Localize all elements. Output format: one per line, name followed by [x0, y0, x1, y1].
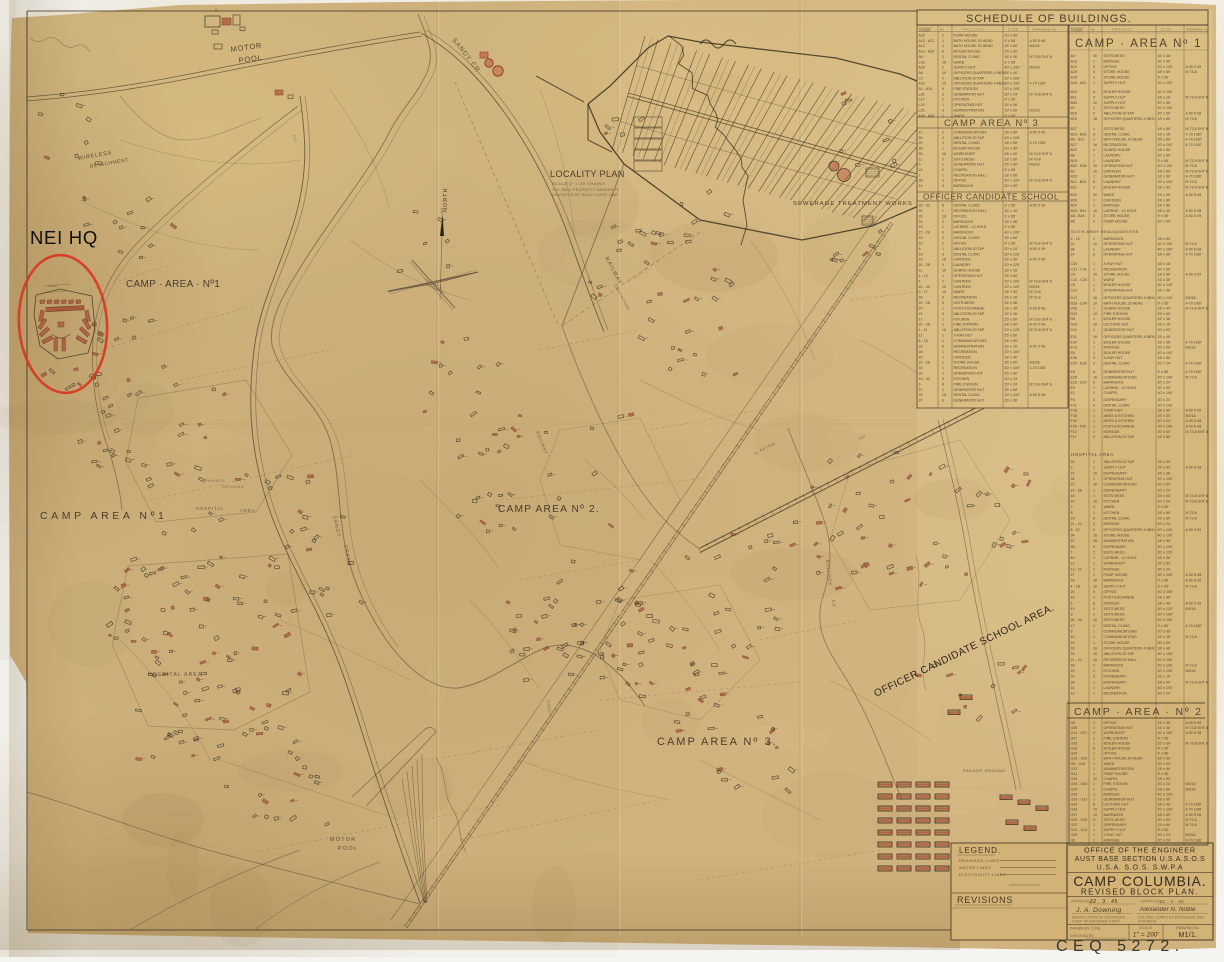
svg-text:DISPENSARY: DISPENSARY — [1104, 823, 1128, 827]
svg-text:7: 7 — [1071, 550, 1073, 554]
svg-text:3: 3 — [1093, 185, 1095, 189]
svg-text:Alexander N. Noble: Alexander N. Noble — [1139, 907, 1196, 913]
svg-text:GUARD HOUSE: GUARD HOUSE — [1104, 148, 1131, 152]
svg-text:A 50 D 08: A 50 D 08 — [1186, 112, 1202, 116]
svg-text:CANTEEN: CANTEEN — [954, 285, 972, 289]
svg-text:RECREATION: RECREATION — [1104, 267, 1128, 271]
svg-text:M 73-8 SHT 6: M 73-8 SHT 6 — [1030, 317, 1052, 321]
svg-text:RECREATION HALL: RECREATION HALL — [1104, 658, 1137, 662]
svg-text:1: 1 — [1093, 767, 1095, 771]
svg-text:OFFICE: OFFICE — [1104, 721, 1118, 725]
svg-text:18' x 60': 18' x 60' — [1005, 173, 1018, 177]
svg-text:1: 1 — [942, 372, 944, 376]
svg-text:25' x 60': 25' x 60' — [1005, 372, 1018, 376]
svg-text:POOL: POOL — [338, 846, 358, 852]
svg-text:M 73-8: M 73-8 — [1186, 823, 1197, 827]
svg-text:M 73-8: M 73-8 — [1186, 511, 1197, 515]
svg-text:BATH HOUSE 20 HEAD: BATH HOUSE 20 HEAD — [954, 44, 993, 48]
svg-text:18' x 40': 18' x 40' — [1158, 209, 1171, 213]
svg-text:21: 21 — [919, 131, 923, 135]
svg-text:CHAPEL: CHAPEL — [954, 168, 968, 172]
svg-text:6: 6 — [942, 344, 944, 348]
svg-text:9' x 55': 9' x 55' — [1005, 225, 1016, 229]
svg-text:6: 6 — [1093, 253, 1095, 257]
svg-text:GENERATOR HUT: GENERATOR HUT — [954, 92, 986, 96]
svg-text:1: 1 — [1093, 752, 1095, 756]
svg-text:M3/18: M3/18 — [1030, 44, 1040, 48]
svg-text:B37: B37 — [1071, 127, 1077, 131]
svg-text:20' x 24': 20' x 24' — [1158, 398, 1171, 402]
svg-text:DRAWING No: DRAWING No — [1187, 28, 1208, 32]
svg-text:LAUNDRY: LAUNDRY — [1104, 686, 1122, 690]
svg-text:GENERATOR HUT: GENERATOR HUT — [1104, 798, 1136, 802]
svg-text:1: 1 — [1093, 351, 1095, 355]
svg-text:16: 16 — [1093, 54, 1097, 58]
svg-text:G29: G29 — [1071, 752, 1078, 756]
svg-text:M 73-8 SHT 6: M 73-8 SHT 6 — [1030, 152, 1052, 156]
svg-text:20' x 100': 20' x 100' — [1158, 106, 1173, 110]
svg-text:M 73-8 SHT 6: M 73-8 SHT 6 — [1186, 680, 1208, 684]
svg-text:1: 1 — [1093, 138, 1095, 142]
svg-text:LATRINE - 12 HOLE: LATRINE - 12 HOLE — [954, 225, 987, 229]
svg-text:6: 6 — [1093, 601, 1095, 605]
svg-text:HOSPITAL AREA: HOSPITAL AREA — [1071, 452, 1114, 457]
svg-text:3: 3 — [1071, 630, 1073, 634]
svg-text:A 50 D 08: A 50 D 08 — [1186, 247, 1202, 251]
svg-text:M 73-8 SHT 6: M 73-8 SHT 6 — [1030, 241, 1052, 245]
svg-text:CAMP · AREA Nº 1: CAMP · AREA Nº 1 — [1075, 38, 1202, 50]
svg-text:AUST BASE SECTION U.S.A.S.O: AUST BASE SECTION U.S.A.S.O.S — [1075, 856, 1205, 863]
svg-text:1: 1 — [1093, 663, 1095, 667]
svg-text:16: 16 — [1093, 117, 1097, 121]
svg-text:10: 10 — [942, 285, 946, 289]
svg-text:DISPENSARY: DISPENSARY — [1104, 471, 1128, 475]
svg-text:20' x 120': 20' x 120' — [1158, 550, 1173, 554]
svg-text:9' x 55': 9' x 55' — [1005, 241, 1016, 245]
svg-text:A 50 D 08: A 50 D 08 — [1186, 209, 1202, 213]
svg-text:20 - 28: 20 - 28 — [919, 361, 930, 365]
svg-text:2: 2 — [942, 92, 944, 96]
svg-text:18' x 40': 18' x 40' — [1158, 721, 1171, 725]
svg-text:18' x 40': 18' x 40' — [1158, 680, 1171, 684]
svg-text:CHAPEL: CHAPEL — [1104, 391, 1118, 395]
svg-text:18' x 90': 18' x 90' — [1158, 596, 1171, 600]
svg-text:OPERATING HUT: OPERATING HUT — [1104, 164, 1134, 168]
svg-text:1: 1 — [1093, 823, 1095, 827]
svg-text:WARD: WARD — [954, 60, 965, 64]
svg-text:M 73-8: M 73-8 — [1186, 70, 1197, 74]
svg-text:CANTEEN: CANTEEN — [1104, 169, 1122, 173]
svg-text:20: 20 — [919, 141, 923, 145]
svg-text:L19: L19 — [919, 103, 925, 107]
svg-text:3: 3 — [942, 263, 944, 267]
svg-text:CAMP AREA Nº1: CAMP AREA Nº1 — [40, 510, 167, 522]
svg-text:E39: E39 — [1071, 340, 1077, 344]
svg-text:20' x 24': 20' x 24' — [1158, 838, 1171, 842]
svg-text:5: 5 — [1071, 601, 1073, 605]
svg-text:KITCHEN: KITCHEN — [954, 317, 970, 321]
svg-text:DRAINAGE LINES: DRAINAGE LINES — [959, 858, 1000, 863]
svg-text:G37: G37 — [1071, 736, 1078, 740]
svg-text:DISPENSARY: DISPENSARY — [1104, 680, 1128, 684]
svg-text:PUMP HOUSE: PUMP HOUSE — [954, 34, 979, 38]
svg-text:~~~: ~~~ — [1008, 883, 1017, 889]
svg-text:40' x 100': 40' x 100' — [1158, 792, 1173, 796]
svg-text:1: 1 — [1093, 787, 1095, 791]
svg-text:G13: G13 — [1071, 767, 1078, 771]
svg-text:SGTS MESS: SGTS MESS — [1104, 54, 1126, 58]
svg-text:M 73-8 SHT 6: M 73-8 SHT 6 — [1030, 92, 1052, 96]
svg-text:16' x 36': 16' x 36' — [1005, 399, 1018, 403]
svg-text:GENERATOR HUT: GENERATOR HUT — [1104, 370, 1136, 374]
svg-text:GROUND: GROUND — [222, 484, 245, 489]
svg-text:B19: B19 — [1071, 117, 1077, 121]
svg-text:1: 1 — [1093, 419, 1095, 423]
svg-text:No: No — [940, 28, 944, 32]
svg-text:M 73-8 SHT 6: M 73-8 SHT 6 — [1030, 328, 1052, 332]
svg-text:E6: E6 — [1071, 370, 1075, 374]
svg-text:20' x 50': 20' x 50' — [1005, 34, 1018, 38]
svg-text:40' x 100': 40' x 100' — [1005, 231, 1020, 235]
svg-text:1: 1 — [1093, 692, 1095, 696]
svg-text:3: 3 — [1071, 505, 1073, 509]
svg-text:18' x 60': 18' x 60' — [1158, 273, 1171, 277]
svg-text:FIRE STATION: FIRE STATION — [1104, 736, 1129, 740]
svg-text:MORGUE: MORGUE — [1104, 59, 1121, 63]
svg-text:CAMP AREA Nº 3: CAMP AREA Nº 3 — [944, 118, 1039, 129]
svg-text:1: 1 — [1093, 556, 1095, 560]
svg-text:20' x 24': 20' x 24' — [1158, 522, 1171, 526]
svg-text:OPERATING HUT: OPERATING HUT — [954, 274, 984, 278]
svg-text:B24: B24 — [1071, 90, 1077, 94]
svg-text:18' x 40': 18' x 40' — [1158, 307, 1171, 311]
svg-text:L3: L3 — [919, 76, 923, 80]
svg-text:13: 13 — [1071, 692, 1075, 696]
svg-text:BOILER HOUSE: BOILER HOUSE — [1104, 283, 1132, 287]
svg-text:1: 1 — [942, 44, 944, 48]
svg-text:B17: B17 — [1071, 143, 1077, 147]
svg-text:20' x 50': 20' x 50' — [1158, 112, 1171, 116]
svg-text:A1 - A10: A1 - A10 — [919, 87, 933, 91]
svg-text:40' x 100': 40' x 100' — [1158, 242, 1173, 246]
svg-text:COMMUNICATIONS: COMMUNICATIONS — [954, 339, 988, 343]
svg-text:20' x 120': 20' x 120' — [1158, 283, 1173, 287]
svg-text:6: 6 — [1093, 590, 1095, 594]
svg-text:16' x 36': 16' x 36' — [1158, 54, 1171, 58]
svg-text:SIZE: SIZE — [1008, 28, 1019, 32]
svg-text:10: 10 — [1093, 584, 1097, 588]
svg-text:16' x 16': 16' x 16' — [1005, 209, 1018, 213]
svg-text:ABLUTION 20 TAP: ABLUTION 20 TAP — [1104, 112, 1135, 116]
svg-text:OFFICE: OFFICE — [954, 179, 968, 183]
svg-text:34: 34 — [919, 366, 923, 370]
svg-text:3: 3 — [1093, 132, 1095, 136]
svg-text:M 73-8: M 73-8 — [1186, 117, 1197, 121]
svg-text:BATH HOUSE 20 HEAD: BATH HOUSE 20 HEAD — [1104, 138, 1143, 142]
svg-text:A 50 D 08: A 50 D 08 — [1030, 306, 1046, 310]
svg-text:21 - 23: 21 - 23 — [1071, 522, 1082, 526]
svg-text:25' x 60': 25' x 60' — [1158, 741, 1171, 745]
svg-text:DENTAL CLINIC: DENTAL CLINIC — [954, 55, 981, 59]
svg-text:18' x 60': 18' x 60' — [1005, 141, 1018, 145]
svg-text:9' x 55': 9' x 55' — [1005, 98, 1016, 102]
svg-text:RECREATION: RECREATION — [954, 350, 978, 354]
svg-text:SUPPLY HUT: SUPPLY HUT — [1104, 584, 1127, 588]
svg-text:AREA: AREA — [240, 508, 255, 513]
svg-text:18' x 90': 18' x 90' — [1005, 339, 1018, 343]
svg-text:C31: C31 — [1071, 289, 1078, 293]
svg-text:M 73-8 SHT 6: M 73-8 SHT 6 — [1186, 95, 1208, 99]
svg-text:BOILER HOUSE: BOILER HOUSE — [954, 50, 982, 54]
svg-text:GENERATOR HUT: GENERATOR HUT — [954, 399, 986, 403]
svg-text:1: 1 — [1093, 641, 1095, 645]
svg-text:20: 20 — [919, 306, 923, 310]
svg-text:27 - 29: 27 - 29 — [919, 231, 930, 235]
svg-text:1: 1 — [942, 366, 944, 370]
svg-text:BARRACKS: BARRACKS — [1104, 381, 1124, 385]
svg-text:1: 1 — [1093, 680, 1095, 684]
svg-text:16' x 16': 16' x 16' — [1005, 344, 1018, 348]
svg-text:OFFICERS QUARTERS 4 MEN: OFFICERS QUARTERS 4 MEN — [1104, 335, 1155, 339]
svg-text:M 73-8: M 73-8 — [1186, 242, 1197, 246]
svg-text:1: 1 — [1093, 59, 1095, 63]
svg-text:1: 1 — [1093, 81, 1095, 85]
svg-text:35: 35 — [919, 214, 923, 218]
svg-text:20 - 28: 20 - 28 — [919, 301, 930, 305]
svg-text:16' x 16': 16' x 16' — [1158, 323, 1171, 327]
svg-text:40: 40 — [1071, 635, 1075, 639]
svg-text:D23: D23 — [1071, 312, 1078, 316]
svg-text:4-70 1087: 4-70 1087 — [1186, 370, 1202, 374]
svg-text:M 73-8 SHT 6: M 73-8 SHT 6 — [1030, 179, 1052, 183]
svg-text:M3/18: M3/18 — [1186, 833, 1196, 837]
svg-text:REVISIONS: REVISIONS — [957, 895, 1013, 905]
svg-text:THE REAL PROPERTY MARKED IS: THE REAL PROPERTY MARKED IS — [552, 188, 619, 192]
svg-text:G31: G31 — [1071, 772, 1078, 776]
svg-text:1: 1 — [1093, 386, 1095, 390]
svg-text:B35: B35 — [1071, 101, 1077, 105]
svg-text:LATRINE - 12 HOLE: LATRINE - 12 HOLE — [1104, 209, 1137, 213]
svg-text:20' x 50': 20' x 50' — [1158, 818, 1171, 822]
svg-text:G10 - G14: G10 - G14 — [1071, 828, 1088, 832]
svg-text:LECTURE HUT: LECTURE HUT — [1104, 323, 1130, 327]
svg-text:16' x 36': 16' x 36' — [1005, 258, 1018, 262]
svg-text:20' x 120': 20' x 120' — [1005, 263, 1020, 267]
svg-text:C9: C9 — [1071, 273, 1076, 277]
svg-text:WARD: WARD — [1104, 505, 1115, 509]
svg-text:20' x 24': 20' x 24' — [1158, 692, 1171, 696]
svg-text:A13 - A25: A13 - A25 — [919, 50, 935, 54]
svg-text:G10 - G23: G10 - G23 — [1071, 757, 1088, 761]
svg-text:OFFICE: OFFICE — [954, 214, 968, 218]
svg-text:20' x 50': 20' x 50' — [1158, 328, 1171, 332]
svg-text:LAUNDRY: LAUNDRY — [1104, 154, 1122, 158]
svg-text:SIGNAL: SIGNAL — [48, 284, 58, 288]
svg-text:21: 21 — [1071, 471, 1075, 475]
svg-text:M3/18: M3/18 — [1186, 787, 1196, 791]
svg-text:A19: A19 — [1071, 65, 1077, 69]
svg-text:40' x 100': 40' x 100' — [1158, 669, 1173, 673]
svg-text:29: 29 — [1071, 517, 1075, 521]
svg-text:RECREATION HALL: RECREATION HALL — [954, 173, 987, 177]
svg-text:2: 2 — [1093, 522, 1095, 526]
svg-text:4-70 1087: 4-70 1087 — [1186, 808, 1202, 812]
svg-text:29: 29 — [919, 220, 923, 224]
svg-text:A12: A12 — [919, 44, 925, 48]
svg-text:28: 28 — [919, 350, 923, 354]
svg-text:3: 3 — [942, 296, 944, 300]
svg-text:13 - 27: 13 - 27 — [1071, 567, 1082, 571]
svg-text:COMMUNICATIONS: COMMUNICATIONS — [954, 131, 988, 135]
svg-text:1: 1 — [1093, 741, 1095, 745]
svg-text:STORE HOUSE: STORE HOUSE — [1104, 533, 1131, 537]
svg-text:9' x 55': 9' x 55' — [1158, 214, 1169, 218]
svg-text:27: 27 — [1071, 573, 1075, 577]
svg-text:2: 2 — [1093, 220, 1095, 224]
svg-text:MORGUE: MORGUE — [1104, 430, 1121, 434]
svg-text:B15: B15 — [1071, 112, 1077, 116]
svg-text:A 50 D 08: A 50 D 08 — [1186, 573, 1202, 577]
svg-text:12: 12 — [919, 334, 923, 338]
svg-text:3: 3 — [942, 312, 944, 316]
svg-text:ADMINISTRATION: ADMINISTRATION — [1104, 539, 1135, 543]
svg-text:2: 2 — [1093, 112, 1095, 116]
svg-text:4-70 1087: 4-70 1087 — [1186, 132, 1202, 136]
svg-text:U.S.A. S.O.S. S.W.P.: U.S.A. S.O.S. S.W.P.A — [1097, 865, 1184, 872]
svg-text:GENERATOR HUT: GENERATOR HUT — [954, 163, 986, 167]
svg-text:B5 - B10: B5 - B10 — [1071, 138, 1085, 142]
svg-text:2: 2 — [1093, 624, 1095, 628]
svg-text:GUARD HOUSE: GUARD HOUSE — [954, 269, 981, 273]
svg-text:20' x 120': 20' x 120' — [1005, 328, 1020, 332]
svg-text:KITCHEN: KITCHEN — [1104, 669, 1120, 673]
svg-text:18' x 90': 18' x 90' — [1005, 290, 1018, 294]
svg-text:6: 6 — [1093, 90, 1095, 94]
svg-text:2: 2 — [1093, 686, 1095, 690]
svg-text:6: 6 — [942, 399, 944, 403]
svg-text:20 - 28: 20 - 28 — [919, 263, 930, 267]
svg-text:G22: G22 — [1071, 823, 1078, 827]
svg-text:CHAPEL: CHAPEL — [1104, 777, 1118, 781]
svg-text:DENTAL CLINIC: DENTAL CLINIC — [954, 393, 981, 397]
svg-text:1: 1 — [1093, 630, 1095, 634]
svg-text:G26 - G37: G26 - G37 — [1071, 798, 1088, 802]
svg-text:1 - 11: 1 - 11 — [919, 328, 928, 332]
svg-text:SGTS MESS: SGTS MESS — [1104, 818, 1126, 822]
svg-text:1: 1 — [942, 279, 944, 283]
svg-text:16: 16 — [1093, 539, 1097, 543]
svg-text:1: 1 — [942, 317, 944, 321]
svg-text:28: 28 — [1071, 646, 1075, 650]
svg-text:20' x 120': 20' x 120' — [1005, 252, 1020, 256]
svg-text:SGTS MESS: SGTS MESS — [1104, 550, 1126, 554]
svg-text:STORE HOUSE: STORE HOUSE — [1104, 70, 1131, 74]
svg-text:16' x 16': 16' x 16' — [1158, 132, 1171, 136]
svg-text:SCALE: SCALE — [1139, 926, 1153, 930]
svg-text:20' x 120': 20' x 120' — [1005, 393, 1020, 397]
svg-text:A 50 X 09: A 50 X 09 — [1186, 409, 1202, 413]
svg-text:CHIEF OF ENGINEER STAFF: CHIEF OF ENGINEER STAFF — [1072, 920, 1120, 924]
svg-text:20' x 24': 20' x 24' — [1158, 500, 1171, 504]
svg-text:LAUNDRY: LAUNDRY — [1104, 180, 1122, 184]
svg-text:SGTS MESS: SGTS MESS — [1104, 618, 1126, 622]
svg-text:3: 3 — [942, 179, 944, 183]
svg-text:18' x 60': 18' x 60' — [1158, 117, 1171, 121]
svg-text:9' x 55': 9' x 55' — [1158, 76, 1169, 80]
svg-text:1: 1 — [942, 209, 944, 213]
svg-text:20' x 50': 20' x 50' — [1005, 147, 1018, 151]
svg-text:CK: CK — [831, 600, 837, 608]
svg-text:6: 6 — [942, 50, 944, 54]
svg-text:1: 1 — [1093, 573, 1095, 577]
svg-text:18' x 60': 18' x 60' — [1158, 356, 1171, 360]
svg-text:M 73-8 SHT 6: M 73-8 SHT 6 — [1186, 741, 1208, 745]
svg-text:1: 1 — [1093, 154, 1095, 158]
svg-text:C31 - C41: C31 - C41 — [1071, 267, 1087, 271]
svg-text:20' x 50': 20' x 50' — [1158, 154, 1171, 158]
svg-text:3: 3 — [942, 136, 944, 140]
svg-text:18' x 40': 18' x 40' — [1158, 601, 1171, 605]
svg-text:10: 10 — [1093, 193, 1097, 197]
svg-text:SGTS MESS: SGTS MESS — [954, 301, 976, 305]
svg-text:GENERATOR HUT: GENERATOR HUT — [1104, 175, 1136, 179]
svg-text:9' x 55': 9' x 55' — [1158, 584, 1169, 588]
svg-text:M 73-8: M 73-8 — [1186, 635, 1197, 639]
svg-text:6: 6 — [942, 301, 944, 305]
svg-text:C12 - C20: C12 - C20 — [1071, 278, 1087, 282]
svg-text:3: 3 — [1093, 95, 1095, 99]
svg-text:1: 1 — [942, 225, 944, 229]
svg-text:A18 - A22: A18 - A22 — [1071, 81, 1087, 85]
svg-text:1: 1 — [942, 147, 944, 151]
svg-text:PUMP HOUSE: PUMP HOUSE — [1104, 573, 1129, 577]
svg-text:OPERATING HUT: OPERATING HUT — [954, 372, 984, 376]
svg-text:3: 3 — [942, 141, 944, 145]
svg-text:20' x 100': 20' x 100' — [1158, 808, 1173, 812]
svg-text:20' x 100': 20' x 100' — [1158, 477, 1173, 481]
svg-text:FIRE STATION: FIRE STATION — [1104, 312, 1129, 316]
svg-text:E15 - E29: E15 - E29 — [1071, 381, 1087, 385]
svg-text:No: No — [1091, 28, 1095, 32]
svg-text:34: 34 — [919, 296, 923, 300]
svg-text:E31: E31 — [1071, 335, 1077, 339]
svg-text:M 73-8 SHT 6: M 73-8 SHT 6 — [1186, 726, 1208, 730]
svg-text:MOTOR: MOTOR — [330, 837, 356, 843]
svg-text:40' x 100': 40' x 100' — [1158, 351, 1173, 355]
svg-text:2: 2 — [1093, 435, 1095, 439]
svg-text:10: 10 — [1093, 312, 1097, 316]
svg-text:B28 - B41: B28 - B41 — [1071, 209, 1087, 213]
svg-text:KITCHEN: KITCHEN — [954, 377, 970, 381]
svg-text:BARRACKS: BARRACKS — [1104, 237, 1124, 241]
svg-text:18' x 90': 18' x 90' — [1158, 777, 1171, 781]
svg-text:36: 36 — [1071, 680, 1075, 684]
svg-text:1: 1 — [1093, 175, 1095, 179]
svg-text:20' x 50': 20' x 50' — [1158, 386, 1171, 390]
svg-text:20' x 50': 20' x 50' — [1158, 562, 1171, 566]
svg-text:ABLUTION 20 TAP: ABLUTION 20 TAP — [954, 136, 985, 140]
svg-text:3: 3 — [1093, 721, 1095, 725]
svg-text:DRAWING No: DRAWING No — [1033, 28, 1057, 32]
svg-text:33: 33 — [1071, 652, 1075, 656]
svg-text:MORGUE: MORGUE — [1104, 567, 1121, 571]
svg-text:5: 5 — [919, 163, 921, 167]
svg-text:B39: B39 — [1071, 198, 1077, 202]
svg-text:18' x 90': 18' x 90' — [1158, 175, 1171, 179]
svg-text:3: 3 — [1093, 214, 1095, 218]
svg-text:25' x 60': 25' x 60' — [1158, 494, 1171, 498]
svg-text:16: 16 — [942, 328, 946, 332]
